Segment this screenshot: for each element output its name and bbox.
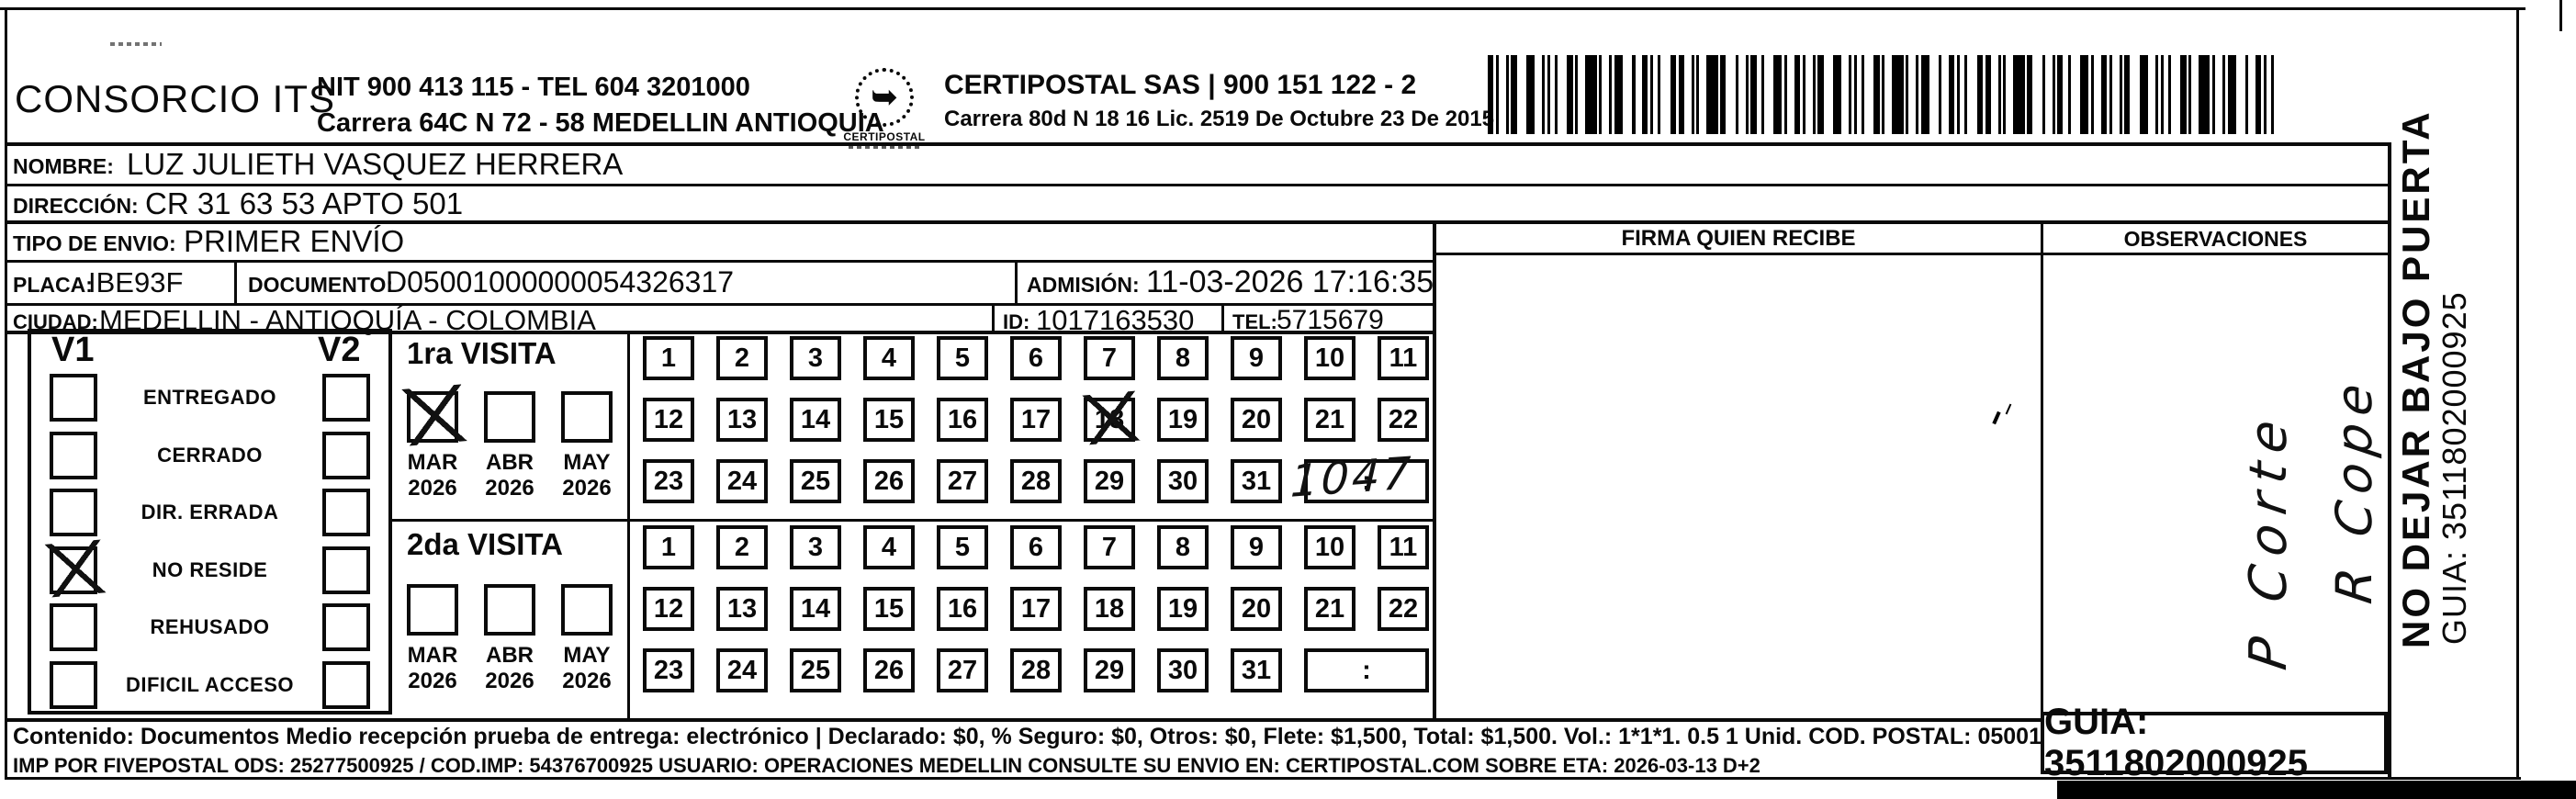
day-cell: 7 <box>1084 336 1135 380</box>
v2-column-header: V2 <box>318 331 360 370</box>
status-row: NO RESIDE <box>31 542 388 600</box>
day-cell: 12 <box>643 398 694 442</box>
day-cell: 4 <box>863 336 915 380</box>
guia-number-box: GUIA: 3511802000925 <box>2041 712 2388 774</box>
day-cell: 25 <box>790 648 841 692</box>
month-label: MAR <box>399 450 467 476</box>
month-label: MAY <box>553 643 621 669</box>
company-address-line: Carrera 64C N 72 - 58 MEDELLIN ANTIOQUIA <box>317 108 884 138</box>
certipostal-company-line: CERTIPOSTAL SAS | 900 151 122 - 2 <box>944 70 1416 101</box>
v1-checkbox <box>50 661 97 709</box>
scanned-shipping-form: CONSORCIO ITS NIT 900 413 115 - TEL 604 … <box>0 0 2576 799</box>
status-label: ENTREGADO <box>108 386 311 410</box>
imposition-info-line: IMP POR FIVEPOSTAL ODS: 25277500925 / CO… <box>13 754 1760 778</box>
day-cell: 24 <box>716 648 768 692</box>
ink-speck <box>1992 411 2000 424</box>
handwritten-note: P Corte <box>2239 407 2299 674</box>
divider <box>5 260 1435 263</box>
day-cell: 20 <box>1231 398 1282 442</box>
divider <box>2041 220 2043 718</box>
id-label: ID: <box>1003 310 1029 334</box>
tipo-envio-label: TIPO DE ENVIO: <box>13 231 176 256</box>
divider <box>5 142 2390 146</box>
day-cell: 4 <box>863 525 915 569</box>
day-cell: 17 <box>1010 587 1062 631</box>
nombre-label: NOMBRE: <box>13 154 114 179</box>
day-cell: 3 <box>790 525 841 569</box>
placa-value: IBE93F <box>88 266 183 299</box>
day-cell: 25 <box>790 459 841 503</box>
month-label: MAR <box>399 643 467 669</box>
day-cell: 19 <box>1157 587 1209 631</box>
status-label: DIR. ERRADA <box>108 501 311 524</box>
day-cell: 10 <box>1304 336 1355 380</box>
v2-checkbox <box>322 489 370 536</box>
day-cell: 13 <box>716 398 768 442</box>
day-cell: 22 <box>1378 587 1429 631</box>
nombre-value: LUZ JULIETH VASQUEZ HERRERA <box>127 147 623 182</box>
month-checkbox <box>561 391 613 443</box>
day-cell: 18 <box>1084 398 1135 442</box>
handwritten-note: R Cope <box>2325 372 2383 607</box>
v1-checkbox <box>50 546 97 594</box>
month-year: 2026 <box>553 476 621 501</box>
day-cell: 12 <box>643 587 694 631</box>
scan-tick-top-right <box>2559 0 2562 31</box>
documento-label: DOCUMENTO: <box>248 273 393 298</box>
scan-border-left <box>5 7 7 779</box>
documento-value: D05001000000054326317 <box>386 265 734 299</box>
day-cell: 11 <box>1378 525 1429 569</box>
v2-checkbox <box>322 546 370 594</box>
status-label: DIFICIL ACCESO <box>108 673 311 697</box>
v1-checkbox <box>50 603 97 651</box>
day-cell: 16 <box>937 587 988 631</box>
day-cell: 5 <box>937 525 988 569</box>
divider <box>5 718 2390 722</box>
day-cell: 15 <box>863 398 915 442</box>
day-cell: 10 <box>1304 525 1355 569</box>
id-value: 1017163530 <box>1036 304 1194 337</box>
day-cell: 23 <box>643 648 694 692</box>
day-cell: 17 <box>1010 398 1062 442</box>
day-cell: 20 <box>1231 587 1282 631</box>
company-contact-lines: NIT 900 413 115 - TEL 604 3201000 Carrer… <box>317 70 884 141</box>
month-checkbox <box>484 584 535 636</box>
company-nit-line: NIT 900 413 115 - TEL 604 3201000 <box>317 73 750 102</box>
day-cell: 6 <box>1010 336 1062 380</box>
day-cell: 31 <box>1231 648 1282 692</box>
day-cell: 30 <box>1157 648 1209 692</box>
month-year: 2026 <box>476 669 544 694</box>
visit1-title: 1ra VISITA <box>407 336 557 371</box>
day-cell: 31 <box>1231 459 1282 503</box>
divider <box>1015 260 1018 303</box>
day-cell: 18 <box>1084 587 1135 631</box>
scan-border-right <box>2516 7 2519 779</box>
month-option: ABR 2026 <box>476 584 544 694</box>
day-cell: 13 <box>716 587 768 631</box>
day-cell: 15 <box>863 587 915 631</box>
handwritten-time: 1047 <box>1289 447 1414 508</box>
visit1-months: MAR 2026 ABR 2026 MAY 2026 <box>399 391 624 501</box>
month-option: ABR 2026 <box>476 391 544 501</box>
day-cell: 29 <box>1084 648 1135 692</box>
day-cell: 8 <box>1157 336 1209 380</box>
day-cell: 6 <box>1010 525 1062 569</box>
firma-quien-recibe-header: FIRMA QUIEN RECIBE <box>1436 226 2041 252</box>
day-cell: 9 <box>1231 525 1282 569</box>
visit2-title: 2da VISITA <box>407 527 563 562</box>
scan-border-top <box>0 7 2525 10</box>
tel-value: 5715679 <box>1277 305 1384 336</box>
day-cell: 1 <box>643 336 694 380</box>
day-cell: 9 <box>1231 336 1282 380</box>
direccion-label: DIRECCIÓN: <box>13 194 139 219</box>
ink-smudge <box>110 42 162 46</box>
v1-checkbox <box>50 432 97 479</box>
day-cell: 2 <box>716 525 768 569</box>
status-panel: V1 V2 ENTREGADO CERRADO DIR. ERRADA <box>28 329 392 715</box>
day-cell: 21 <box>1304 587 1355 631</box>
status-row: DIR. ERRADA <box>31 484 388 542</box>
placa-label: PLACA: <box>13 273 93 298</box>
side-guia-number: GUIA: 3511802000925 <box>2435 291 2474 645</box>
day-cell: 23 <box>643 459 694 503</box>
direccion-value: CR 31 63 53 APTO 501 <box>145 186 463 221</box>
divider <box>392 519 1433 522</box>
divider <box>1221 303 1224 331</box>
company-name: CONSORCIO ITS <box>15 77 335 121</box>
month-checkbox <box>484 391 535 443</box>
day-cell: 27 <box>937 459 988 503</box>
day-cell: 27 <box>937 648 988 692</box>
day-cell: 1 <box>643 525 694 569</box>
day-cell: 21 <box>1304 398 1355 442</box>
v2-checkbox <box>322 603 370 651</box>
status-label: CERRADO <box>108 444 311 467</box>
day-cell: 29 <box>1084 459 1135 503</box>
status-row: REHUSADO <box>31 599 388 657</box>
certipostal-logo-text: CERTIPOSTAL <box>834 130 935 143</box>
divider <box>234 260 237 303</box>
status-label: REHUSADO <box>108 615 311 639</box>
status-label: NO RESIDE <box>108 558 311 582</box>
day-cell: 24 <box>716 459 768 503</box>
month-year: 2026 <box>476 476 544 501</box>
month-checkbox <box>407 584 458 636</box>
day-cell: 14 <box>790 587 841 631</box>
tipo-envio-value: PRIMER ENVÍO <box>184 224 404 259</box>
month-label: MAY <box>553 450 621 476</box>
month-year: 2026 <box>399 669 467 694</box>
month-option: MAY 2026 <box>553 391 621 501</box>
observaciones-header: OBSERVACIONES <box>2043 227 2388 252</box>
month-label: ABR <box>476 643 544 669</box>
day-cell: 26 <box>863 648 915 692</box>
v2-checkbox <box>322 661 370 709</box>
day-cell: 8 <box>1157 525 1209 569</box>
month-checkbox <box>561 584 613 636</box>
divider <box>627 331 630 718</box>
month-year: 2026 <box>399 476 467 501</box>
admision-label: ADMISIÓN: <box>1027 273 1140 298</box>
day-cell: 2 <box>716 336 768 380</box>
status-row: ENTREGADO <box>31 369 388 427</box>
month-option: MAR 2026 <box>399 584 467 694</box>
logo-glyph: ➥ <box>872 79 898 116</box>
barcode <box>1488 55 2283 134</box>
day-cell: 16 <box>937 398 988 442</box>
status-row: CERRADO <box>31 427 388 485</box>
month-label: ABR <box>476 450 544 476</box>
content-declaration-line: Contenido: Documentos Medio recepción pr… <box>13 724 2054 750</box>
status-rows: ENTREGADO CERRADO DIR. ERRADA <box>31 369 388 714</box>
month-option: MAY 2026 <box>553 584 621 694</box>
v1-checkbox <box>50 489 97 536</box>
divider <box>992 303 995 331</box>
day-cell: 14 <box>790 398 841 442</box>
day-cell: 7 <box>1084 525 1135 569</box>
divider <box>2388 142 2391 777</box>
certipostal-license-line: Carrera 80d N 18 16 Lic. 2519 De Octubre… <box>944 107 1494 132</box>
day-cell: 22 <box>1378 398 1429 442</box>
month-option: MAR 2026 <box>399 391 467 501</box>
v2-checkbox <box>322 374 370 422</box>
v2-checkbox <box>322 432 370 479</box>
visit2-day-grid: 1234567891011121314151617181920212223242… <box>643 525 1429 692</box>
month-checkbox <box>407 391 458 443</box>
visit2-time-box: : <box>1304 648 1429 692</box>
day-cell: 30 <box>1157 459 1209 503</box>
tel-label: TEL: <box>1232 310 1277 334</box>
day-cell: 28 <box>1010 459 1062 503</box>
divider <box>1433 253 2390 255</box>
status-row: DIFICIL ACCESO <box>31 657 388 715</box>
v1-checkbox <box>50 374 97 422</box>
visit2-months: MAR 2026 ABR 2026 MAY 2026 <box>399 584 624 694</box>
day-cell: 3 <box>790 336 841 380</box>
month-year: 2026 <box>553 669 621 694</box>
v1-column-header: V1 <box>51 331 94 370</box>
certipostal-logo-icon: ➥ <box>855 68 914 127</box>
no-dejar-bajo-puerta-warning: NO DEJAR BAJO PUERTA <box>2394 109 2438 648</box>
day-cell: 11 <box>1378 336 1429 380</box>
day-cell: 28 <box>1010 648 1062 692</box>
day-cell: 26 <box>863 459 915 503</box>
day-cell: 19 <box>1157 398 1209 442</box>
admision-value: 11-03-2026 17:16:35 <box>1146 264 1434 300</box>
day-cell: 5 <box>937 336 988 380</box>
certipostal-logo: ➥ CERTIPOSTAL <box>834 68 935 149</box>
